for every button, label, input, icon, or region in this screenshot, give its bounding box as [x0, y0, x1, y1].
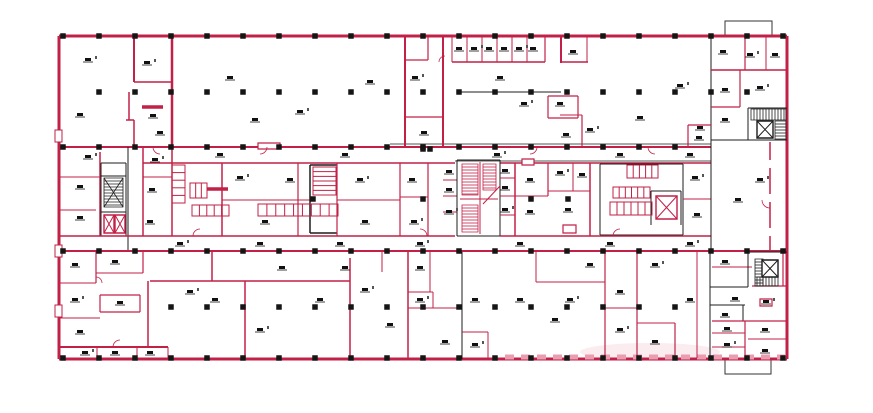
structural-column: [528, 248, 534, 254]
label-speck: [422, 74, 424, 77]
structural-column: [672, 144, 678, 150]
ceiling-fixture: [444, 170, 454, 174]
structural-column: [276, 89, 282, 95]
fixture-body: [149, 188, 155, 191]
ceiling-fixture: [499, 47, 509, 51]
structural-column: [420, 248, 426, 254]
fixture-body: [687, 242, 693, 245]
structural-column: [600, 304, 606, 310]
fixture-body: [456, 47, 462, 50]
structural-column: [456, 33, 462, 39]
label-speck: [767, 84, 769, 87]
label-speck: [504, 151, 506, 154]
fixture-body: [77, 113, 83, 116]
fixture-body: [417, 298, 423, 301]
structural-column: [672, 248, 678, 254]
stair-outline: [462, 205, 478, 232]
structural-column: [168, 355, 174, 361]
staircase: [104, 178, 123, 207]
structural-column: [240, 248, 246, 254]
structural-column: [636, 355, 642, 361]
fixture-body: [486, 47, 492, 50]
structural-column: [708, 33, 714, 39]
ceiling-fixture: [360, 286, 374, 292]
ceiling-fixture: [694, 136, 704, 140]
equipment-box: [522, 159, 534, 165]
label-speck: [757, 51, 759, 54]
structural-column: [204, 144, 210, 150]
ceiling-fixture: [685, 153, 695, 157]
label-speck: [421, 218, 423, 221]
fixture-body: [735, 198, 741, 201]
elevator-shaft: [656, 196, 677, 219]
fixture-body: [722, 260, 728, 263]
structural-column: [672, 33, 678, 39]
structural-column: [240, 89, 246, 95]
structural-column: [96, 355, 102, 361]
ceiling-fixture: [500, 206, 514, 212]
fixture-body: [617, 153, 623, 156]
fixture-body: [446, 188, 452, 191]
fixture-body: [177, 242, 183, 245]
ceiling-fixture: [260, 220, 270, 224]
structural-column: [276, 33, 282, 39]
structural-column: [60, 33, 66, 39]
fixture-body: [762, 349, 768, 352]
structural-column: [708, 89, 714, 95]
label-speck: [597, 126, 599, 129]
fixture-body: [530, 47, 536, 50]
ceiling-fixture: [444, 208, 458, 214]
fixture-body: [472, 343, 478, 346]
structural-column: [636, 248, 642, 254]
ceiling-fixture: [175, 240, 189, 246]
ceiling-fixture: [563, 208, 573, 212]
fixture-body: [317, 298, 323, 301]
fixture-body: [502, 208, 508, 211]
label-speck: [427, 240, 429, 243]
fixture-body: [257, 328, 263, 331]
ceiling-fixture: [415, 266, 425, 270]
structural-column: [528, 304, 534, 310]
ceiling-fixture: [755, 176, 769, 182]
fixture-body: [527, 210, 533, 213]
fixture-body: [692, 176, 698, 179]
label-speck: [526, 45, 528, 48]
label-speck: [92, 349, 94, 352]
fixture-body: [77, 185, 83, 188]
label-speck: [702, 174, 704, 177]
structural-column: [456, 248, 462, 254]
fixture-body: [112, 351, 118, 354]
fixture-body: [217, 153, 223, 156]
door-swing-arc: [648, 147, 655, 154]
ceiling-fixture: [519, 100, 533, 106]
fixture-body: [227, 76, 233, 79]
ceiling-fixture: [145, 351, 155, 355]
label-speck: [162, 156, 164, 159]
ceiling-fixture: [495, 76, 505, 80]
structural-column: [420, 33, 426, 39]
structural-column: [168, 144, 174, 150]
ceiling-fixture: [484, 47, 494, 51]
fixture-body: [527, 178, 533, 181]
structural-column: [132, 144, 138, 150]
fixture-body: [652, 340, 658, 343]
fixture-body: [342, 153, 348, 156]
structural-column: [420, 304, 426, 310]
fixture-body: [446, 210, 452, 213]
fixture-body: [720, 50, 726, 53]
structural-column: [312, 89, 318, 95]
fixture-body: [552, 318, 558, 321]
staircase: [757, 277, 778, 286]
fixture-body: [517, 298, 523, 301]
ceiling-fixture: [685, 298, 695, 302]
structural-column: [420, 355, 426, 361]
ceiling-fixture: [550, 318, 560, 322]
canopy-outline: [725, 359, 771, 374]
ceiling-fixture: [500, 186, 510, 190]
fixture-body: [517, 242, 523, 245]
fixture-body: [763, 300, 769, 303]
ceiling-fixture: [110, 260, 120, 264]
label-speck: [267, 326, 269, 329]
fixture-body: [757, 178, 763, 181]
ceiling-fixture: [577, 173, 587, 177]
structural-column: [132, 33, 138, 39]
staircase: [462, 164, 478, 195]
ceiling-fixture: [745, 51, 759, 57]
structural-column: [384, 33, 390, 39]
ceiling-fixture: [555, 169, 569, 175]
label-speck: [481, 45, 483, 48]
fixture-body: [722, 118, 728, 121]
staircase: [483, 164, 500, 204]
fixture-body: [417, 242, 423, 245]
structural-column: [636, 144, 642, 150]
fixture-body: [497, 76, 503, 79]
ceiling-fixture: [585, 126, 599, 132]
fixture-body: [722, 88, 728, 91]
ceiling-fixture: [675, 82, 689, 88]
label-speck: [197, 288, 199, 291]
structural-column: [348, 248, 354, 254]
structural-column: [240, 144, 246, 150]
structural-column: [672, 304, 678, 310]
ceiling-fixture: [454, 47, 464, 51]
fixture-body: [112, 260, 118, 263]
ceiling-fixture: [340, 153, 350, 157]
fixture-body: [607, 242, 613, 245]
ceiling-fixture: [585, 263, 595, 267]
fixture-body: [694, 213, 700, 216]
structural-column: [427, 146, 433, 152]
structural-column: [492, 89, 498, 95]
structural-column: [672, 355, 678, 361]
structural-column: [744, 355, 750, 361]
structural-column: [348, 355, 354, 361]
structural-column: [600, 89, 606, 95]
structural-column: [204, 89, 210, 95]
fixture-body: [724, 327, 730, 330]
fixture-body: [117, 301, 123, 304]
structural-column: [528, 89, 534, 95]
structural-column: [456, 144, 462, 150]
fixture-body: [617, 328, 623, 331]
ceiling-fixture: [185, 288, 199, 294]
ceiling-fixture: [142, 59, 156, 65]
staircase: [462, 205, 478, 232]
structural-column: [276, 304, 282, 310]
structural-column: [132, 355, 138, 361]
structural-column: [708, 355, 714, 361]
fixture-body: [85, 58, 91, 61]
ceiling-fixture: [760, 328, 770, 332]
ceiling-fixture: [75, 185, 85, 189]
ceiling-fixture: [615, 290, 625, 294]
ceiling-fixture: [470, 341, 484, 347]
fixture-body: [557, 102, 563, 105]
fixture-body: [722, 313, 728, 316]
label-speck: [662, 261, 664, 264]
fixture-body: [212, 298, 218, 301]
structural-column: [564, 355, 570, 361]
ceiling-fixture: [150, 156, 164, 162]
label-speck: [773, 298, 775, 301]
label-speck: [307, 108, 309, 111]
fixture-body: [287, 178, 293, 181]
fixture-body: [757, 86, 763, 89]
structural-column: [204, 355, 210, 361]
fixture-body: [501, 47, 507, 50]
ceiling-fixture: [561, 133, 571, 137]
ceiling-fixture: [115, 301, 125, 305]
structural-column: [204, 33, 210, 39]
structural-column: [600, 33, 606, 39]
structural-column: [310, 196, 316, 202]
fixture-body: [677, 84, 683, 87]
fixture-body: [144, 61, 150, 64]
ceiling-fixture: [568, 50, 578, 54]
fixture-body: [411, 220, 417, 223]
ceiling-fixture: [148, 114, 158, 118]
ceiling-fixture: [415, 240, 429, 246]
structural-column: [492, 144, 498, 150]
stall-block: [192, 205, 229, 216]
ceiling-fixture: [360, 220, 370, 224]
ceiling-fixture: [650, 261, 664, 267]
fixture-body: [421, 131, 427, 134]
ceiling-fixture: [470, 298, 480, 302]
fixture-body: [367, 80, 373, 83]
structural-column: [528, 144, 534, 150]
stall-block: [172, 165, 185, 203]
fixture-body: [387, 323, 393, 326]
structural-column: [780, 355, 786, 361]
ceiling-fixture: [235, 174, 249, 180]
structural-column: [600, 144, 606, 150]
label-speck: [372, 286, 374, 289]
label-speck: [95, 153, 97, 156]
label-speck: [367, 176, 369, 179]
ceiling-fixture: [215, 153, 225, 157]
structural-column: [168, 248, 174, 254]
fixture-body: [147, 351, 153, 354]
floor-plan-canvas: [0, 0, 873, 413]
ceiling-fixture: [407, 178, 417, 182]
door-swing-arc: [420, 229, 427, 236]
fixture-body: [77, 216, 83, 219]
structural-column: [528, 355, 534, 361]
structural-column: [276, 355, 282, 361]
structural-column: [96, 33, 102, 39]
label-speck: [154, 59, 156, 62]
fixture-body: [362, 220, 368, 223]
structural-column: [348, 89, 354, 95]
fixture-body: [732, 297, 738, 300]
fixture-body: [724, 343, 730, 346]
door-swing-arc: [113, 340, 120, 347]
fixture-body: [85, 155, 91, 158]
structural-column: [60, 144, 66, 150]
ceiling-fixture: [145, 220, 155, 224]
stair-outline: [483, 164, 496, 190]
structural-column: [384, 144, 390, 150]
structural-column: [168, 33, 174, 39]
fixture-body: [567, 298, 573, 301]
label-speck: [456, 208, 458, 211]
structural-column: [600, 248, 606, 254]
fixture-body: [563, 133, 569, 136]
structural-column: [312, 144, 318, 150]
ceiling-fixture: [285, 178, 295, 182]
ceiling-fixture: [720, 118, 730, 122]
ceiling-fixture: [295, 108, 309, 114]
fixture-body: [262, 220, 268, 223]
fixture-body: [442, 340, 448, 343]
fixture-body: [587, 263, 593, 266]
fixture-body: [362, 288, 368, 291]
ceiling-fixture: [514, 45, 528, 51]
label-speck: [697, 240, 699, 243]
structural-column: [564, 89, 570, 95]
ceiling-fixture: [685, 240, 699, 246]
ceiling-fixture: [225, 76, 235, 80]
ceiling-fixture: [255, 242, 265, 246]
structural-column: [312, 248, 318, 254]
structural-column: [420, 146, 426, 152]
fixture-body: [279, 266, 285, 269]
structural-column: [636, 33, 642, 39]
fixture-body: [687, 298, 693, 301]
window-mark: [55, 130, 62, 142]
structural-column: [565, 196, 571, 202]
label-speck: [512, 206, 514, 209]
label-speck: [482, 341, 484, 344]
structural-column: [96, 89, 102, 95]
ceiling-fixture: [720, 88, 730, 92]
structural-column: [96, 248, 102, 254]
ceiling-fixture: [635, 116, 645, 120]
structural-column: [132, 248, 138, 254]
ceiling-fixture: [355, 176, 369, 182]
ceiling-fixture: [340, 266, 350, 270]
ceiling-fixture: [335, 242, 345, 246]
fixture-body: [747, 53, 753, 56]
stall-block: [627, 165, 658, 178]
stair-arrow: [483, 186, 500, 204]
structural-column: [168, 89, 174, 95]
elevator-shaft: [762, 260, 778, 277]
structural-column: [276, 248, 282, 254]
structural-column: [564, 248, 570, 254]
structural-column: [456, 355, 462, 361]
label-speck: [767, 176, 769, 179]
ceiling-fixture: [469, 45, 483, 51]
structural-column: [60, 355, 66, 361]
label-speck: [627, 326, 629, 329]
fixture-body: [342, 266, 348, 269]
structural-column: [240, 355, 246, 361]
ceiling-fixture: [250, 118, 260, 122]
ceiling-fixture: [525, 210, 535, 214]
label-speck: [734, 341, 736, 344]
fixture-body: [471, 47, 477, 50]
ceiling-fixture: [365, 80, 375, 84]
ceiling-fixture: [605, 242, 615, 246]
ceiling-fixture: [720, 260, 730, 264]
fixture-body: [152, 158, 158, 161]
ceiling-fixture: [155, 131, 165, 135]
ceiling-fixture: [690, 174, 704, 180]
ceiling-fixture: [385, 323, 395, 327]
fixture-body: [150, 114, 156, 117]
stall-block: [190, 183, 207, 198]
structural-column: [312, 355, 318, 361]
label-speck: [687, 82, 689, 85]
structural-column: [132, 89, 138, 95]
fixture-body: [687, 153, 693, 156]
elevator-shaft: [104, 215, 114, 233]
fixture-body: [579, 173, 585, 176]
fixture-body: [637, 116, 643, 119]
fixture-body: [696, 136, 702, 139]
ceiling-fixture: [718, 50, 728, 54]
fixture-body: [521, 102, 527, 105]
fixture-body: [570, 50, 576, 53]
structural-column: [528, 196, 534, 202]
fixture-body: [617, 290, 623, 293]
ceiling-fixture: [210, 298, 220, 302]
ceiling-fixture: [500, 169, 510, 173]
structural-column: [96, 144, 102, 150]
fixture-body: [502, 169, 508, 172]
window-mark: [55, 305, 62, 317]
label-speck: [82, 296, 84, 299]
fixture-body: [494, 153, 500, 156]
fixture-body: [446, 170, 452, 173]
ceiling-fixture: [722, 327, 732, 331]
structural-column: [744, 89, 750, 95]
fixture-body: [652, 263, 658, 266]
ceiling-fixture: [720, 313, 730, 317]
ceiling-fixture: [75, 330, 85, 334]
fixture-body: [697, 126, 703, 129]
door-swing-arc: [193, 229, 200, 236]
fixture-body: [472, 298, 478, 301]
structural-column: [744, 33, 750, 39]
